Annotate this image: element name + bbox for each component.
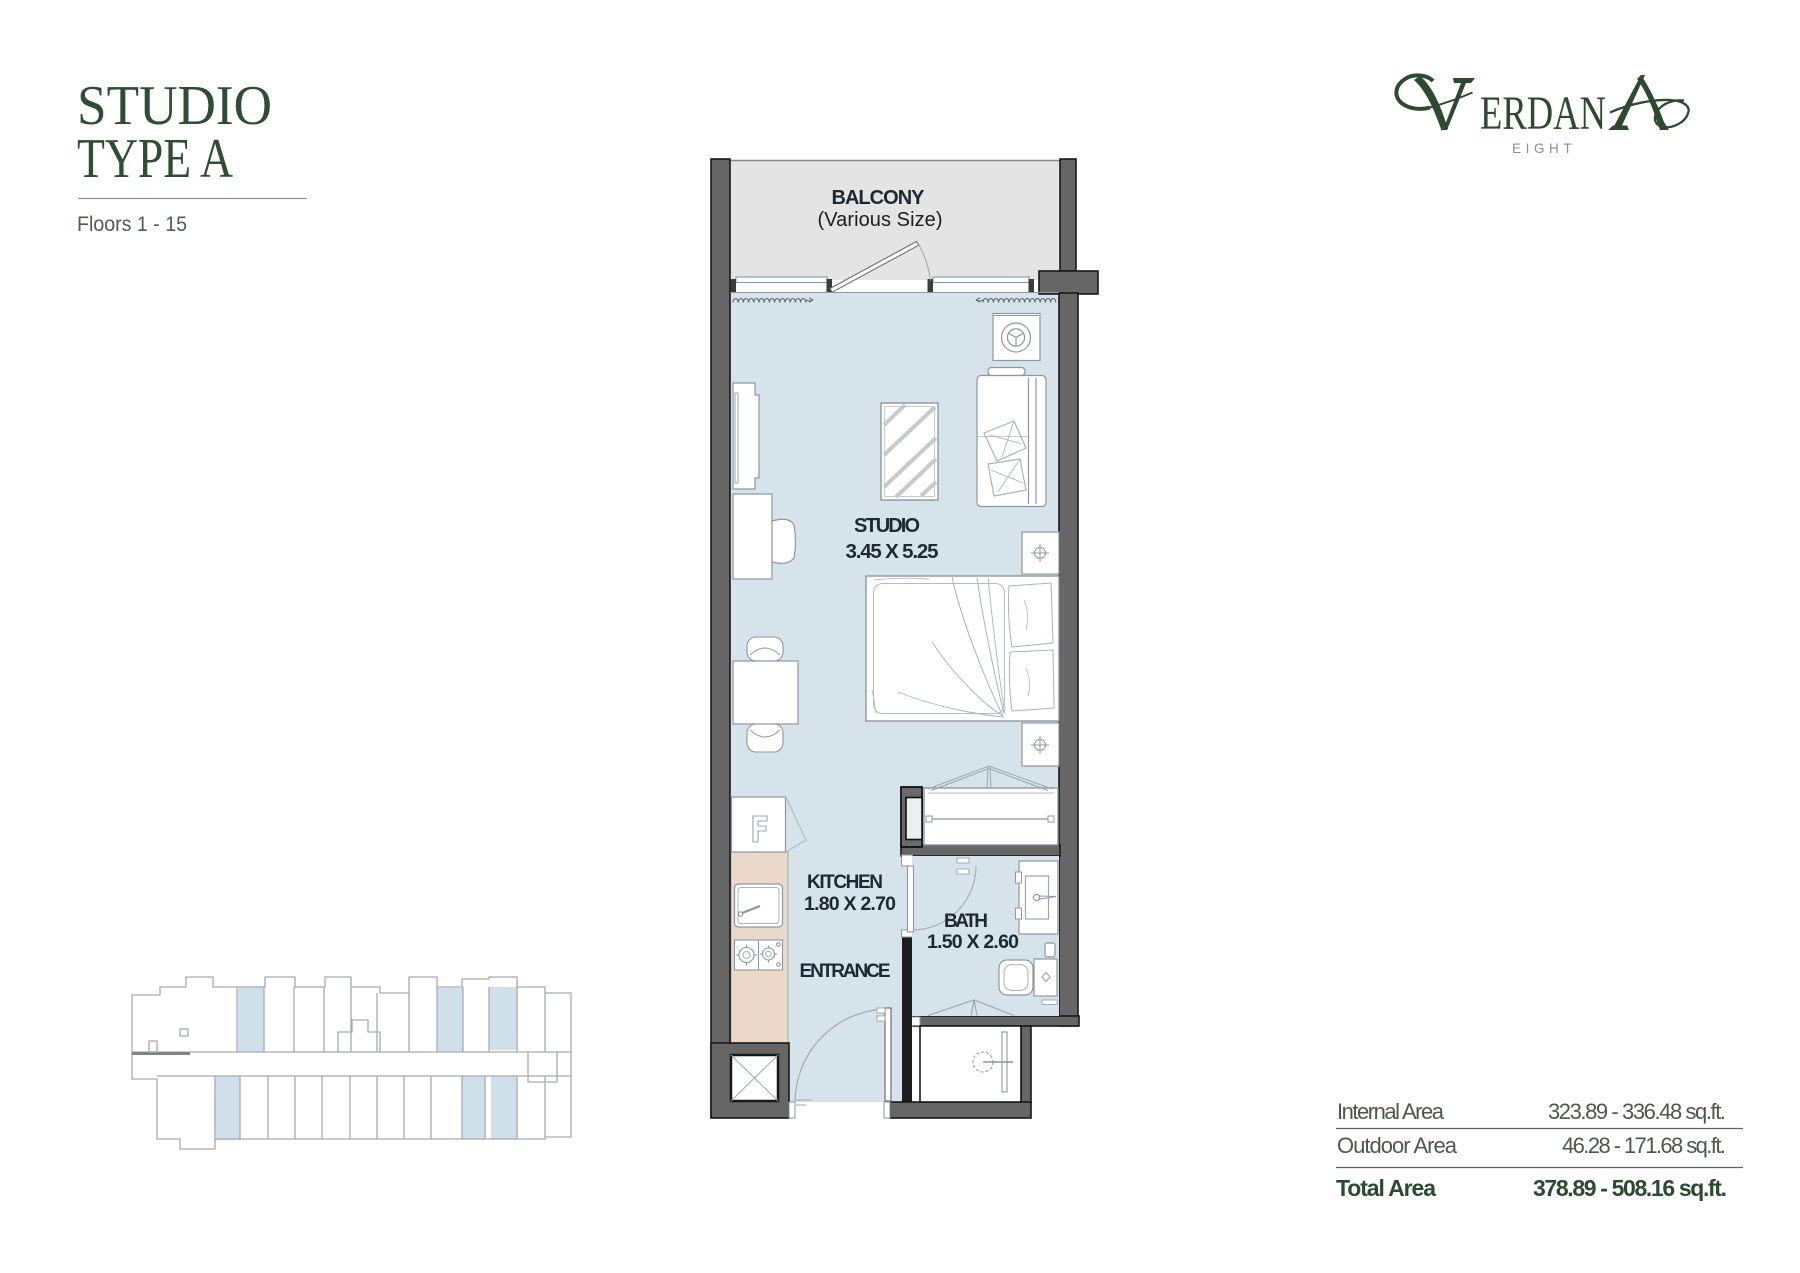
svg-text:323.89 - 336.48 sq.ft.: 323.89 - 336.48 sq.ft. [1548, 1099, 1726, 1124]
svg-text:3.45 X 5.25: 3.45 X 5.25 [846, 540, 939, 563]
svg-text:Floors 1 - 15: Floors 1 - 15 [77, 212, 187, 236]
svg-text:1.80 X 2.70: 1.80 X 2.70 [804, 893, 896, 915]
svg-text:STUDIO: STUDIO [854, 515, 920, 537]
svg-text:Internal Area: Internal Area [1337, 1099, 1445, 1124]
svg-text:BATH: BATH [944, 911, 988, 932]
svg-text:BALCONY: BALCONY [832, 187, 926, 209]
svg-text:378.89 - 508.16 sq.ft.: 378.89 - 508.16 sq.ft. [1533, 1175, 1727, 1201]
svg-text:EIGHT: EIGHT [1512, 141, 1576, 156]
svg-text:Total Area: Total Area [1336, 1175, 1436, 1201]
svg-text:KITCHEN: KITCHEN [807, 872, 883, 893]
svg-text:TYPE A: TYPE A [77, 128, 233, 190]
svg-text:1.50 X 2.60: 1.50 X 2.60 [927, 931, 1019, 953]
svg-text:Outdoor Area: Outdoor Area [1337, 1133, 1458, 1158]
svg-text:ENTRANCE: ENTRANCE [800, 961, 891, 982]
svg-text:ERDAN: ERDAN [1480, 87, 1606, 140]
svg-text:(Various Size): (Various Size) [818, 209, 943, 231]
svg-text:46.28 - 171.68 sq.ft.: 46.28 - 171.68 sq.ft. [1562, 1133, 1726, 1158]
